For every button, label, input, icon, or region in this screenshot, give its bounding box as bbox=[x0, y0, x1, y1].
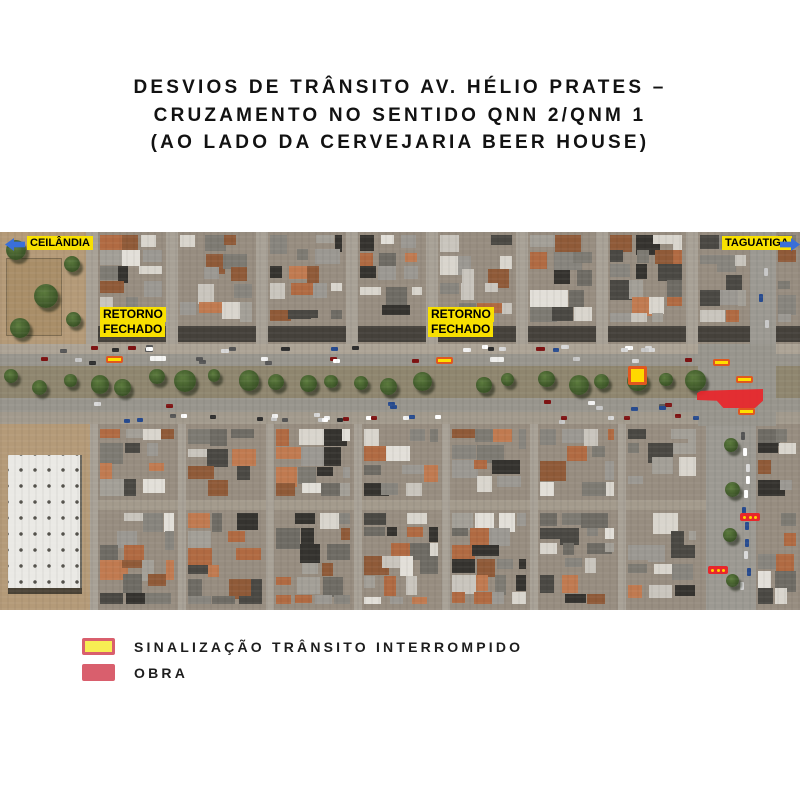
avenue-sidewalk-north bbox=[0, 344, 800, 354]
retorno-fechado-label-2: RETORNO FECHADO bbox=[428, 307, 494, 337]
cross-street-upper bbox=[750, 232, 776, 354]
retorno-fechado-label-1: RETORNO FECHADO bbox=[100, 307, 166, 337]
dotted-barrier-marker-1 bbox=[740, 513, 760, 521]
signal-square-marker bbox=[628, 366, 647, 385]
ceilandia-label: CEILÂNDIA bbox=[27, 236, 93, 250]
legend-item-obra: OBRA bbox=[82, 664, 523, 681]
legend: SINALIZAÇÃO TRÂNSITO INTERROMPIDO OBRA bbox=[82, 638, 523, 690]
legend-label-obra: OBRA bbox=[134, 665, 188, 681]
fechado-line: FECHADO bbox=[428, 322, 493, 337]
retorno-line: RETORNO bbox=[428, 307, 494, 322]
legend-item-sinalizacao: SINALIZAÇÃO TRÂNSITO INTERROMPIDO bbox=[82, 638, 523, 655]
signal-marker-3 bbox=[713, 359, 730, 366]
title-line-2: CRUZAMENTO NO SENTIDO QNN 2/QNM 1 bbox=[0, 102, 800, 130]
fechado-line: FECHADO bbox=[100, 322, 165, 337]
legend-swatch-sinalizacao bbox=[82, 638, 115, 655]
legend-swatch-obra bbox=[82, 664, 115, 681]
signal-marker-4 bbox=[736, 376, 753, 383]
title-line-1: DESVIOS DE TRÂNSITO AV. HÉLIO PRATES – bbox=[0, 74, 800, 102]
signal-marker-2 bbox=[436, 357, 453, 364]
signal-marker-5 bbox=[738, 408, 755, 415]
satellite-map: CEILÂNDIA TAGUATIGA RETORNO FECHADO RETO… bbox=[0, 232, 800, 610]
page-title: DESVIOS DE TRÂNSITO AV. HÉLIO PRATES – C… bbox=[0, 74, 800, 157]
dotted-barrier-marker-2 bbox=[708, 566, 728, 574]
warehouse-building bbox=[8, 455, 82, 588]
legend-label-sinalizacao: SINALIZAÇÃO TRÂNSITO INTERROMPIDO bbox=[134, 639, 523, 655]
signal-marker-1 bbox=[106, 356, 123, 363]
retorno-line: RETORNO bbox=[100, 307, 166, 322]
flyer-page: DESVIOS DE TRÂNSITO AV. HÉLIO PRATES – C… bbox=[0, 0, 800, 800]
avenue-lane-south bbox=[0, 398, 800, 412]
title-line-3: (AO LADO DA CERVEJARIA BEER HOUSE) bbox=[0, 129, 800, 157]
intersection bbox=[698, 344, 776, 426]
